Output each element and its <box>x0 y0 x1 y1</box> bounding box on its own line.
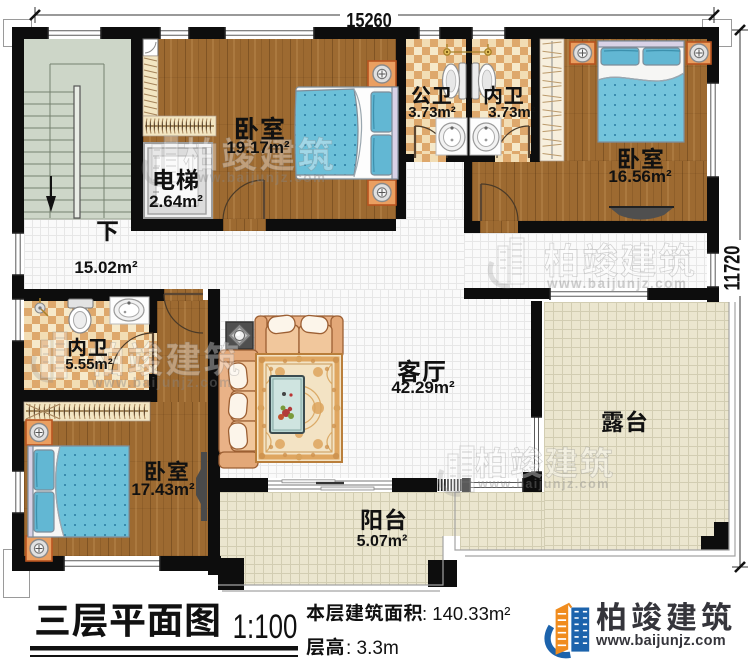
svg-text:16.56m²: 16.56m² <box>608 167 672 186</box>
svg-text:www.baijunjz.com: www.baijunjz.com <box>185 170 327 185</box>
svg-text:15.02m²: 15.02m² <box>74 258 138 277</box>
svg-text:3.73m²: 3.73m² <box>488 104 536 121</box>
svg-text:5.07m²: 5.07m² <box>357 533 408 550</box>
svg-text:5.55m²: 5.55m² <box>65 356 113 373</box>
svg-text:42.29m²: 42.29m² <box>391 378 455 397</box>
svg-text:11720: 11720 <box>720 245 745 290</box>
svg-text:: 3.3m: : 3.3m <box>346 638 399 659</box>
svg-text:15260: 15260 <box>346 8 392 31</box>
svg-text:www.baijunjz.com: www.baijunjz.com <box>546 276 688 291</box>
svg-text:: 140.33m²: : 140.33m² <box>422 603 510 624</box>
svg-text:2.64m²: 2.64m² <box>149 192 203 211</box>
svg-text:1:100: 1:100 <box>233 609 298 646</box>
svg-text:www.baijunjz.com: www.baijunjz.com <box>477 477 610 491</box>
svg-text:www.baijunjz.com: www.baijunjz.com <box>91 375 233 390</box>
svg-text:17.43m²: 17.43m² <box>131 480 195 499</box>
svg-text:3.73m²: 3.73m² <box>408 104 456 121</box>
svg-text:www.baijunjz.com: www.baijunjz.com <box>595 633 726 649</box>
svg-text:19.17m²: 19.17m² <box>226 138 290 157</box>
